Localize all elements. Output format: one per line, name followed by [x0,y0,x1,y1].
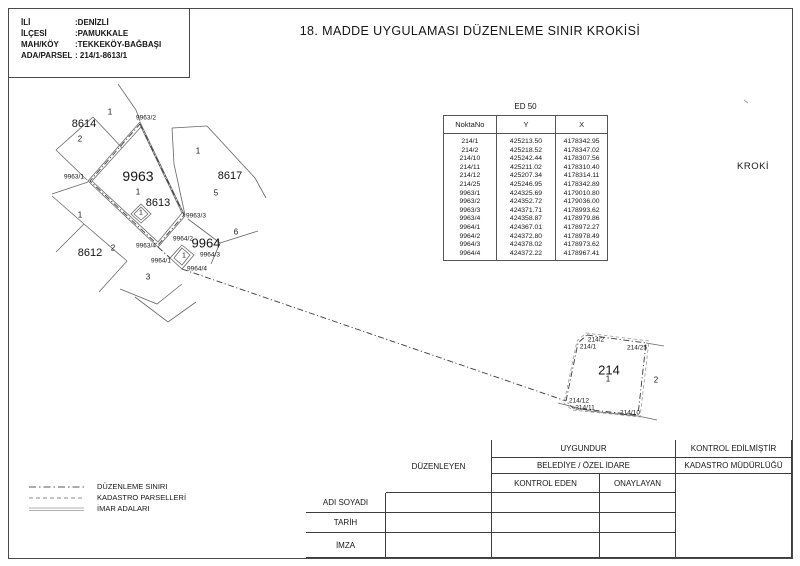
map-label: 1 [196,147,200,156]
coordinate-cell: 4178972.27 [556,224,607,233]
cell-onaylayan: ONAYLAYAN [600,474,676,493]
parcel-value: : 214/1-8613/1 [75,50,127,61]
entry-cell [386,513,492,533]
entry-cell [492,533,600,558]
coordinate-cell: 9964/1 [444,224,496,233]
info-row-province: İLİ :DENİZLİ [21,17,189,28]
entry-cell [386,493,492,513]
coordinate-cell: 9964/4 [444,250,496,259]
coordinate-cell: 9964/3 [444,241,496,250]
coordinate-cell: 424325.69 [497,190,556,199]
cell-belediye-ozel-idare: BELEDİYE / ÖZEL İDARE [492,458,676,474]
entry-cell [492,513,600,533]
coordinate-cell: 9963/4 [444,215,496,224]
province-label: İLİ [21,17,75,28]
map-label: 3 [146,273,150,282]
coordinate-table-title: ED 50 [443,102,608,111]
coordinate-cell: 4178342.95 [556,138,607,147]
column-cells-y: 425213.50425218.52425242.44425211.024252… [497,134,556,258]
entry-cell [492,493,600,513]
column-x: X 4178342.954178347.024178307.564178310.… [555,116,607,260]
coordinate-cell: 425211.02 [497,164,556,173]
map-label: 214/2 [588,337,604,344]
province-value: :DENİZLİ [75,17,109,28]
cell-kadastro-signature-area [676,474,792,558]
column-noktano: NoktaNo 214/1214/2214/10214/11214/12214/… [444,116,496,260]
page-title: 18. MADDE UYGULAMASI DÜZENLEME SINIR KRO… [250,24,690,38]
coordinate-cell: 424371.71 [497,207,556,216]
map-label: 1 [108,108,112,117]
column-y: Y 425213.50425218.52425242.44425211.0242… [496,116,556,260]
coordinate-cell: 214/1 [444,138,496,147]
coordinate-cell: 4178307.56 [556,155,607,164]
coordinate-cell: 4179010.80 [556,190,607,199]
cell-kontrol-edilmistir: KONTROL EDİLMİŞTİR [676,440,792,458]
village-value: :TEKKEKÖY-BAĞBAŞI [75,39,161,50]
coordinate-cell: 424352.72 [497,198,556,207]
map-label: 8614 [72,118,96,130]
column-cells-x: 4178342.954178347.024178307.564178310.40… [556,134,607,258]
coordinate-cell: 425242.44 [497,155,556,164]
cell-kontrol-eden: KONTROL EDEN [492,474,600,493]
cell-tarih: TARİH [306,513,386,533]
coordinate-cell: 9963/3 [444,207,496,216]
column-header-y: Y [497,116,556,134]
coordinate-cell: 425218.52 [497,147,556,156]
cell-duzenleyen: DÜZENLEYEN [386,440,492,493]
map-label: 1 [136,188,140,197]
coordinate-cell: 214/10 [444,155,496,164]
map-label: 9963/1 [64,174,84,181]
district-value: :PAMUKKALE [75,28,128,39]
coordinate-cell: 424372.22 [497,250,556,259]
entry-cell [600,493,676,513]
map-label: 214/1 [580,344,596,351]
location-info-box: İLİ :DENİZLİ İLÇESİ :PAMUKKALE MAH/KÖY :… [8,8,190,78]
coordinate-cell: 214/12 [444,172,496,181]
coordinate-cell: 425213.50 [497,138,556,147]
map-label: 214/11 [575,405,594,412]
cadastral-sketch-document: İLİ :DENİZLİ İLÇESİ :PAMUKKALE MAH/KÖY :… [0,0,800,566]
cell-uygundur: UYGUNDUR [492,440,676,458]
map-label: 9963 [122,168,153,184]
map-label: 5 [214,189,218,198]
map-label: 1 [182,253,186,260]
coordinate-cell: 4179036.00 [556,198,607,207]
coordinate-cell: 424367.01 [497,224,556,233]
map-label: 9963/2 [136,115,156,122]
coordinate-cell: 4178314.11 [556,172,607,181]
map-label: 2 [654,376,658,385]
coordinate-cell: 214/2 [444,147,496,156]
map-label: 9964 [192,236,221,251]
coordinate-cell: 425207.34 [497,172,556,181]
village-label: MAH/KÖY [21,39,75,50]
map-label: 1 [78,211,82,220]
map-label: 8617 [218,170,242,182]
map-label: 214/12 [569,398,589,405]
coordinate-cell: 4178993.62 [556,207,607,216]
coordinate-cell: 4178347.02 [556,147,607,156]
map-label: 9963/3 [186,213,206,220]
coordinate-cell: 4178967.41 [556,250,607,259]
legend-item-imar-blocks: İMAR ADALARI [97,505,150,513]
coordinate-cell: 9964/2 [444,233,496,242]
map-label: 8613 [146,197,170,209]
column-header-noktano: NoktaNo [444,116,496,134]
entry-cell [600,513,676,533]
legend-item-regulation-boundary: DÜZENLEME SINIRI [97,483,167,491]
info-row-village: MAH/KÖY :TEKKEKÖY-BAĞBAŞI [21,39,189,50]
coordinate-cell: 424372.80 [497,233,556,242]
coordinate-table: ED 50 NoktaNo 214/1214/2214/10214/11214/… [443,102,608,261]
map-label: 9964/4 [187,266,207,273]
map-label: 2 [78,135,82,144]
coordinate-cell: 4178310.40 [556,164,607,173]
map-label: 1 [606,375,610,384]
cell-kadastro-mudurlugu: KADASTRO MÜDÜRLÜĞÜ [676,458,792,474]
map-label: 2 [111,244,115,253]
kroki-caption: KROKİ [737,161,769,172]
district-label: İLÇESİ [21,28,75,39]
info-row-parcel: ADA/PARSEL : 214/1-8613/1 [21,50,189,61]
coordinate-cell: 9963/2 [444,198,496,207]
coordinate-cell: 9963/1 [444,190,496,199]
cadastral-parcel-lines [52,84,748,420]
entry-cell [600,533,676,558]
coordinate-cell: 4178979.86 [556,215,607,224]
coordinate-cell: 425246.95 [497,181,556,190]
map-label: 6 [234,228,238,237]
column-header-x: X [556,116,607,134]
coordinate-cell: 4178973.62 [556,241,607,250]
parcel-label: ADA/PARSEL [21,50,75,61]
coordinate-cell: 424378.02 [497,241,556,250]
cell-adi-soyadi: ADI SOYADI [306,493,386,513]
cell-imza: İMZA [306,533,386,558]
coordinate-cell: 4178342.89 [556,181,607,190]
coordinate-table-grid: NoktaNo 214/1214/2214/10214/11214/12214/… [443,115,608,261]
map-label: 9964/1 [151,258,171,265]
coordinate-cell: 214/25 [444,181,496,190]
map-label: 9964/2 [173,236,193,243]
map-label: 214/25 [627,345,647,352]
info-row-district: İLÇESİ :PAMUKKALE [21,28,189,39]
map-label: 9963/4 [136,243,156,250]
map-label: 9964/3 [200,252,220,259]
map-label: 214/10 [620,410,640,417]
coordinate-cell: 4178978.49 [556,233,607,242]
map-label: 8612 [78,247,102,259]
coordinate-cell: 214/11 [444,164,496,173]
legend-item-cadastral-parcels: KADASTRO PARSELLERİ [97,494,186,502]
map-label: 1 [139,210,143,217]
entry-cell [386,533,492,558]
legend-lines [29,487,84,511]
coordinate-cell: 424358.87 [497,215,556,224]
column-cells-noktano: 214/1214/2214/10214/11214/12214/259963/1… [444,134,496,258]
